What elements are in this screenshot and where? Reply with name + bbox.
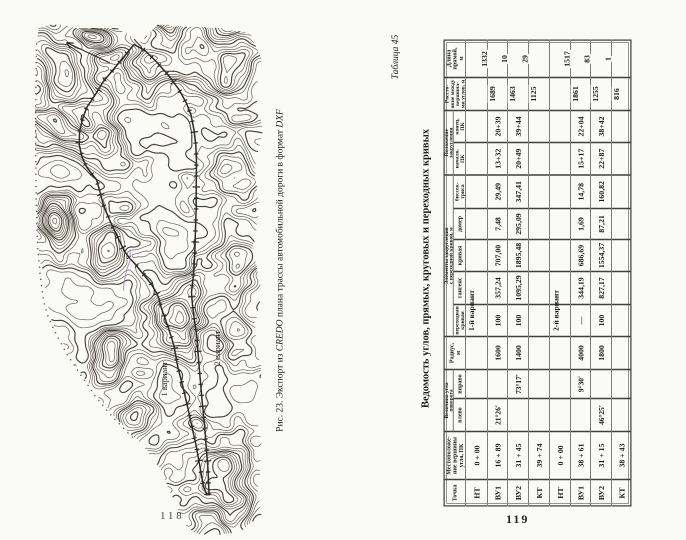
svg-text:31 + 45: 31 + 45 bbox=[513, 443, 522, 467]
svg-text:Местоположе-: Местоположе- bbox=[446, 436, 452, 474]
svg-text:29: 29 bbox=[520, 55, 529, 63]
svg-text:—: — bbox=[576, 316, 585, 325]
svg-text:7,48: 7,48 bbox=[493, 217, 502, 231]
svg-text:816: 816 bbox=[611, 88, 620, 100]
svg-text:1255: 1255 bbox=[590, 86, 599, 102]
svg-text:домер: домер bbox=[457, 215, 463, 232]
svg-text:22+87: 22+87 bbox=[596, 148, 605, 168]
svg-text:827,17: 827,17 bbox=[596, 277, 605, 299]
svg-text:ПК: ПК bbox=[460, 154, 466, 162]
svg-text:с переходной кривой, м: с переходной кривой, м bbox=[447, 227, 454, 284]
svg-text:10: 10 bbox=[499, 55, 508, 63]
svg-text:73°17′: 73°17′ bbox=[513, 374, 522, 394]
svg-text:1861: 1861 bbox=[570, 86, 579, 102]
svg-text:15+17: 15+17 bbox=[576, 148, 585, 168]
svg-text:1400: 1400 bbox=[513, 345, 522, 361]
svg-text:38 + 43: 38 + 43 bbox=[617, 443, 626, 467]
svg-text:14,78: 14,78 bbox=[576, 182, 585, 200]
svg-text:НТ: НТ bbox=[555, 486, 564, 498]
svg-text:НТ: НТ bbox=[472, 486, 481, 498]
svg-text:ние вершины: ние вершины bbox=[452, 436, 458, 473]
svg-text:1463: 1463 bbox=[507, 86, 516, 102]
svg-text:закругления: закругления bbox=[448, 127, 454, 157]
svg-text:1689: 1689 bbox=[487, 86, 496, 102]
svg-text:Радиус,: Радиус, bbox=[449, 342, 455, 363]
svg-text:100: 100 bbox=[493, 314, 502, 326]
svg-text:тангенс: тангенс bbox=[457, 277, 463, 298]
svg-text:39+44: 39+44 bbox=[513, 116, 522, 136]
svg-text:344,19: 344,19 bbox=[576, 277, 585, 299]
svg-text:ВУ1: ВУ1 bbox=[493, 485, 502, 499]
svg-text:31 + 15: 31 + 15 bbox=[596, 443, 605, 467]
svg-text:влево: влево bbox=[457, 407, 463, 422]
svg-text:4000: 4000 bbox=[576, 345, 585, 361]
svg-text:кривая: кривая bbox=[460, 311, 466, 329]
svg-text:38+42: 38+42 bbox=[596, 116, 605, 136]
svg-text:ВУ2: ВУ2 bbox=[513, 485, 522, 499]
svg-text:29,49: 29,49 bbox=[493, 182, 502, 200]
svg-text:КТ: КТ bbox=[534, 486, 543, 498]
svg-text:1600: 1600 bbox=[493, 345, 502, 361]
svg-text:1095,29: 1095,29 bbox=[513, 275, 522, 300]
svg-text:1: 1 bbox=[603, 56, 612, 60]
svg-text:38 + 61: 38 + 61 bbox=[576, 443, 585, 467]
svg-text:100: 100 bbox=[513, 314, 522, 326]
svg-text:1125: 1125 bbox=[528, 86, 537, 101]
svg-text:ВУ2: ВУ2 bbox=[596, 485, 605, 499]
svg-text:357,24: 357,24 bbox=[493, 277, 502, 299]
svg-text:83: 83 bbox=[582, 55, 591, 63]
svg-text:1554,37: 1554,37 bbox=[596, 242, 605, 267]
svg-text:20+49: 20+49 bbox=[513, 148, 522, 168]
svg-text:707,00: 707,00 bbox=[493, 244, 502, 266]
svg-text:21°26′: 21°26′ bbox=[493, 405, 502, 425]
svg-text:16 + 89: 16 + 89 bbox=[493, 443, 502, 467]
svg-text:ВУ1: ВУ1 bbox=[576, 485, 585, 499]
svg-text:триса: триса bbox=[460, 184, 466, 199]
svg-text:прямой,: прямой, bbox=[451, 47, 458, 70]
svg-text:кривая: кривая bbox=[457, 244, 463, 264]
svg-text:46°25′: 46°25′ bbox=[596, 405, 605, 425]
svg-text:м: м bbox=[455, 350, 461, 354]
svg-text:1,69: 1,69 bbox=[576, 217, 585, 231]
svg-text:2-й вариант: 2-й вариант bbox=[551, 289, 560, 330]
svg-text:160,82: 160,82 bbox=[596, 180, 605, 202]
svg-text:вправо: вправо bbox=[457, 374, 463, 393]
svg-text:686,69: 686,69 bbox=[576, 244, 585, 266]
svg-text:Точка: Точка bbox=[451, 484, 458, 501]
svg-text:295,09: 295,09 bbox=[513, 213, 522, 235]
svg-text:9°30′: 9°30′ bbox=[576, 375, 585, 391]
svg-text:0 + 00: 0 + 00 bbox=[472, 445, 481, 465]
svg-text:0 + 00: 0 + 00 bbox=[555, 445, 564, 465]
svg-text:347,41: 347,41 bbox=[513, 180, 522, 202]
svg-text:1332: 1332 bbox=[479, 51, 488, 67]
svg-text:поворота: поворота bbox=[448, 389, 454, 412]
svg-text:Длина: Длина bbox=[446, 49, 452, 66]
svg-text:1-й вариант: 1-й вариант bbox=[466, 289, 475, 330]
svg-text:1895,48: 1895,48 bbox=[513, 242, 522, 267]
svg-text:угла, ПК: угла, ПК bbox=[458, 442, 464, 466]
svg-text:ПК: ПК bbox=[460, 122, 466, 130]
svg-text:ми углов, м: ми углов, м bbox=[460, 79, 466, 108]
svg-text:39 + 74: 39 + 74 bbox=[534, 443, 543, 467]
svg-text:1517: 1517 bbox=[562, 51, 571, 67]
svg-text:100: 100 bbox=[596, 314, 605, 326]
svg-text:м: м bbox=[458, 56, 464, 60]
svg-text:22+04: 22+04 bbox=[576, 116, 585, 136]
svg-text:87,21: 87,21 bbox=[596, 215, 605, 233]
svg-text:1800: 1800 bbox=[596, 345, 605, 361]
svg-text:КТ: КТ bbox=[617, 486, 626, 498]
svg-text:13+32: 13+32 bbox=[493, 148, 502, 168]
svg-text:20+39: 20+39 bbox=[493, 116, 502, 136]
